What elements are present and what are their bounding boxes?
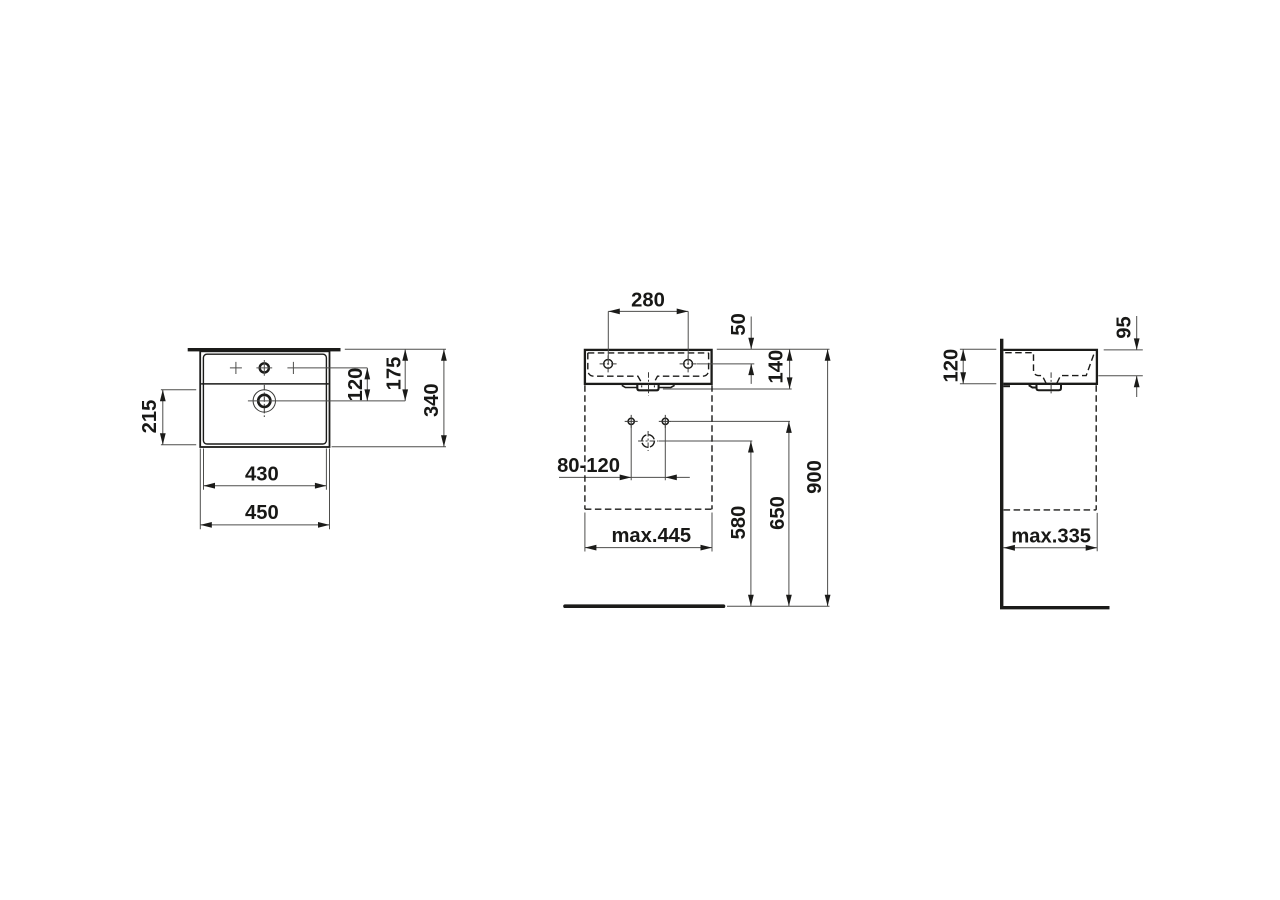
svg-text:175: 175 [383, 357, 405, 391]
svg-text:900: 900 [804, 460, 826, 494]
svg-text:max.335: max.335 [1011, 525, 1091, 547]
svg-text:120: 120 [941, 349, 963, 383]
svg-text:50: 50 [728, 313, 750, 335]
svg-text:340: 340 [421, 383, 443, 417]
svg-text:max.445: max.445 [611, 525, 691, 547]
svg-text:120: 120 [345, 368, 367, 402]
svg-text:430: 430 [245, 463, 279, 485]
svg-text:95: 95 [1113, 316, 1135, 338]
svg-text:215: 215 [139, 400, 161, 434]
svg-text:80-120: 80-120 [557, 455, 620, 477]
svg-text:580: 580 [728, 506, 750, 540]
svg-text:650: 650 [767, 496, 789, 530]
svg-text:450: 450 [245, 502, 279, 524]
svg-text:280: 280 [631, 289, 665, 311]
svg-text:140: 140 [765, 350, 787, 384]
